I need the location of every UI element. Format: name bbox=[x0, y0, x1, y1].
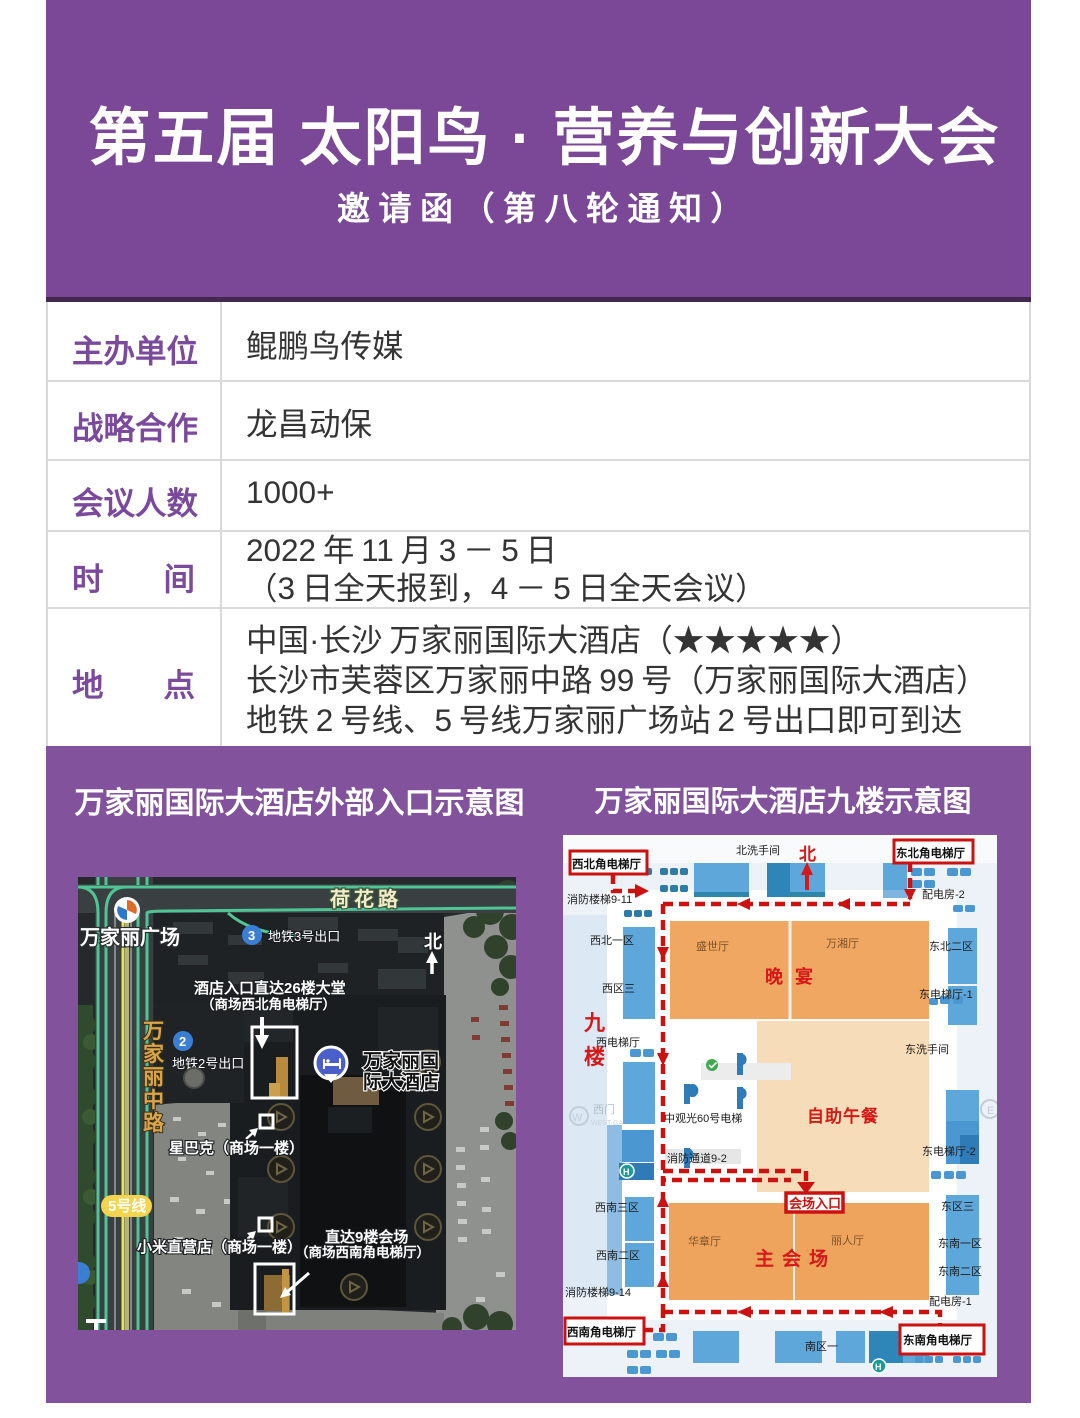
svg-text:西南角电梯厅: 西南角电梯厅 bbox=[567, 1325, 636, 1339]
svg-text:北洗手间: 北洗手间 bbox=[736, 843, 780, 857]
svg-text:3: 3 bbox=[248, 928, 255, 943]
svg-text:消防楼梯9-11: 消防楼梯9-11 bbox=[567, 892, 632, 906]
svg-text:西门: 西门 bbox=[593, 1102, 615, 1116]
svg-text:西南二区: 西南二区 bbox=[596, 1249, 640, 1262]
svg-text:E: E bbox=[987, 1105, 994, 1117]
svg-text:消防楼梯9-14: 消防楼梯9-14 bbox=[565, 1285, 631, 1299]
svg-text:东洗手间: 东洗手间 bbox=[905, 1042, 949, 1056]
svg-text:中观光60号电梯: 中观光60号电梯 bbox=[664, 1111, 742, 1125]
svg-text:主会场: 主会场 bbox=[755, 1247, 836, 1270]
svg-text:西区三: 西区三 bbox=[602, 983, 635, 995]
svg-text:丽人厅: 丽人厅 bbox=[831, 1234, 864, 1247]
svg-text:路: 路 bbox=[143, 1111, 165, 1135]
svg-text:丽: 丽 bbox=[143, 1066, 164, 1089]
svg-text:配电房-1: 配电房-1 bbox=[929, 1295, 972, 1308]
svg-text:北: 北 bbox=[424, 932, 442, 952]
svg-text:小米直营店（商场一楼）: 小米直营店（商场一楼） bbox=[137, 1238, 302, 1256]
svg-text:东电梯厅-1: 东电梯厅-1 bbox=[919, 988, 973, 1001]
svg-text:消防通道9-2: 消防通道9-2 bbox=[667, 1151, 727, 1165]
svg-text:东区三: 东区三 bbox=[941, 1200, 974, 1213]
svg-text:5号线: 5号线 bbox=[108, 1197, 146, 1215]
svg-text:晚宴: 晚宴 bbox=[765, 966, 825, 987]
svg-text:酒店入口直达26楼大堂: 酒店入口直达26楼大堂 bbox=[194, 979, 346, 997]
svg-text:际大酒店: 际大酒店 bbox=[363, 1070, 439, 1093]
svg-text:荷花路: 荷花路 bbox=[330, 887, 402, 911]
svg-text:盛世厅: 盛世厅 bbox=[696, 939, 729, 953]
svg-text:万家丽广场: 万家丽广场 bbox=[79, 925, 180, 949]
svg-text:东北二区: 东北二区 bbox=[929, 940, 973, 953]
svg-text:WEST GA: WEST GA bbox=[591, 1120, 623, 1127]
svg-text:（商场西南角电梯厅）: （商场西南角电梯厅） bbox=[295, 1244, 430, 1260]
svg-text:2: 2 bbox=[179, 1034, 186, 1049]
svg-text:配电房-2: 配电房-2 bbox=[922, 888, 965, 901]
svg-text:东南角电梯厅: 东南角电梯厅 bbox=[903, 1333, 972, 1347]
svg-text:中: 中 bbox=[143, 1089, 164, 1112]
svg-text:H: H bbox=[875, 1362, 882, 1372]
svg-text:H: H bbox=[623, 1167, 630, 1177]
svg-text:西北角电梯厅: 西北角电梯厅 bbox=[572, 857, 641, 871]
svg-text:东北角电梯厅: 东北角电梯厅 bbox=[896, 846, 965, 860]
svg-text:家: 家 bbox=[143, 1042, 165, 1066]
svg-text:西北一区: 西北一区 bbox=[590, 934, 634, 947]
svg-text:楼: 楼 bbox=[584, 1046, 605, 1069]
svg-text:自助午餐: 自助午餐 bbox=[807, 1106, 879, 1126]
svg-text:万: 万 bbox=[142, 1020, 164, 1043]
svg-text:华章厅: 华章厅 bbox=[688, 1234, 721, 1248]
svg-text:星巴克（商场一楼）: 星巴克（商场一楼） bbox=[169, 1139, 304, 1157]
svg-text:（商场西北角电梯厅）: （商场西北角电梯厅） bbox=[201, 996, 336, 1012]
svg-text:会场入口: 会场入口 bbox=[789, 1196, 841, 1211]
svg-text:南区一: 南区一 bbox=[805, 1340, 838, 1353]
svg-text:万家丽国: 万家丽国 bbox=[362, 1049, 439, 1072]
svg-text:北: 北 bbox=[799, 845, 816, 864]
svg-text:万湘厅: 万湘厅 bbox=[826, 936, 859, 950]
svg-text:地铁2号出口: 地铁2号出口 bbox=[172, 1056, 244, 1071]
svg-text:西南三区: 西南三区 bbox=[595, 1201, 639, 1214]
svg-text:九: 九 bbox=[583, 1012, 605, 1035]
svg-text:东电梯厅-2: 东电梯厅-2 bbox=[922, 1145, 976, 1158]
svg-text:东南二区: 东南二区 bbox=[938, 1265, 982, 1278]
svg-text:东南一区: 东南一区 bbox=[938, 1237, 982, 1250]
svg-text:地铁3号出口: 地铁3号出口 bbox=[268, 929, 340, 944]
svg-text:直达9楼会场: 直达9楼会场 bbox=[325, 1228, 408, 1246]
svg-text:W: W bbox=[572, 1112, 583, 1124]
